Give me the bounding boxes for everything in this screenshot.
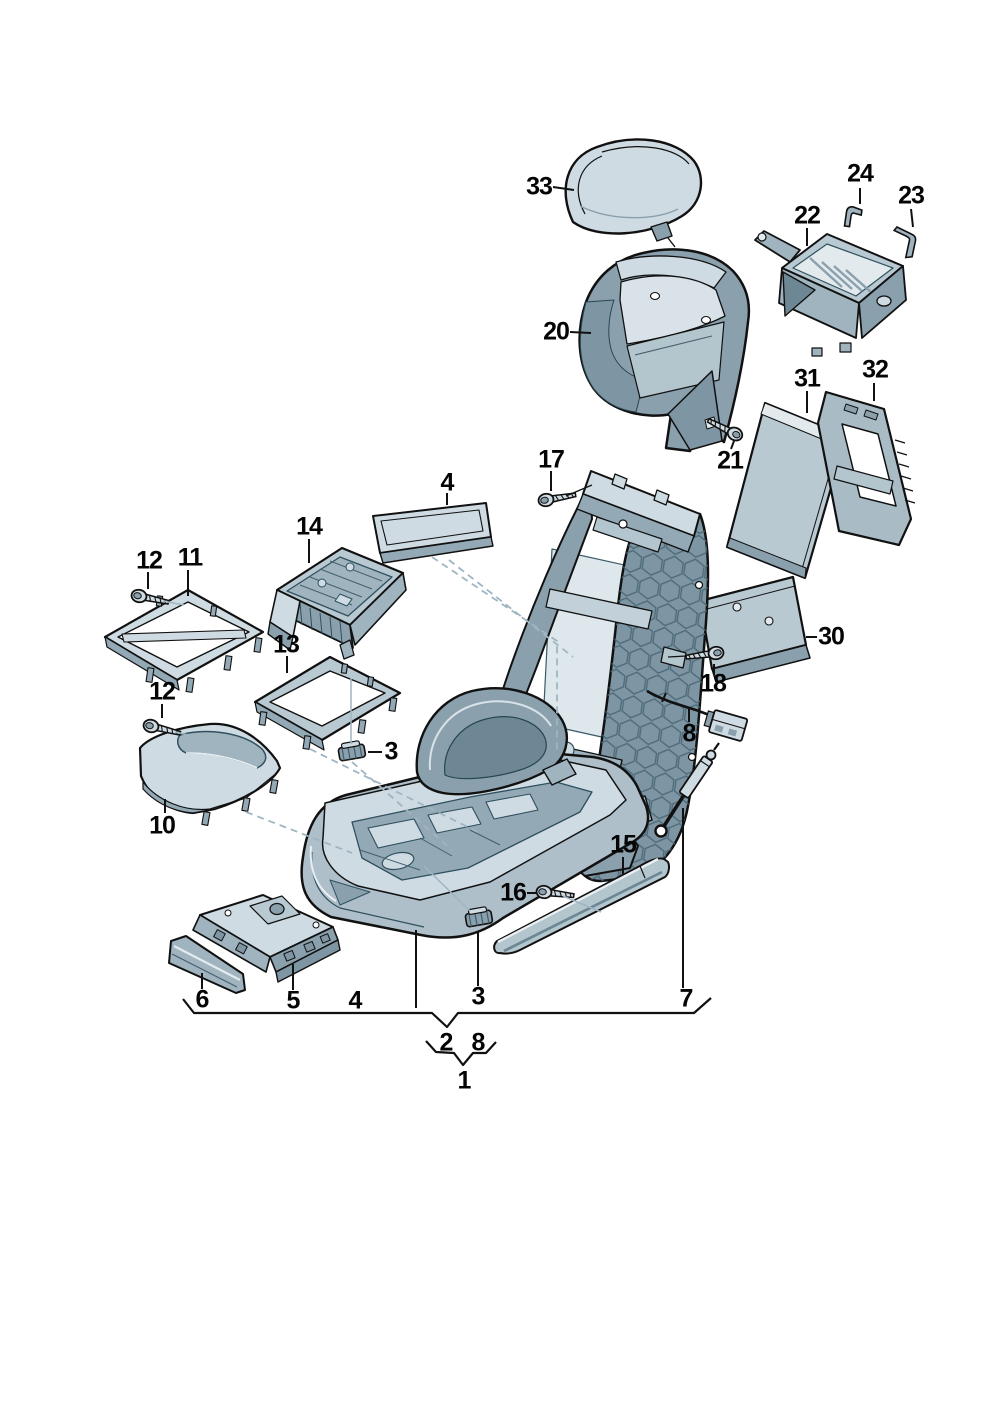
part-20-backrest-shell	[580, 249, 749, 451]
part-4-insert-lid	[373, 503, 493, 563]
part-14-storage-tray	[268, 548, 406, 659]
part-22-folding-tray	[755, 231, 906, 356]
part-23-clip	[889, 227, 917, 259]
diagram-canvas: 3324232220313221174141211131231030188151…	[0, 0, 992, 1403]
screw-17	[538, 489, 577, 508]
part-32-retaining-frame	[818, 392, 915, 545]
part-30-bracket-panel	[700, 577, 810, 682]
group-brackets	[183, 998, 711, 1065]
part-10-cover	[140, 724, 280, 826]
part-24-clip	[845, 206, 863, 228]
part-11-frame-cover	[105, 590, 263, 692]
part-13-frame	[255, 657, 400, 750]
part-33-lid-cushion	[566, 139, 701, 247]
exploded-view-drawing	[0, 0, 992, 1403]
